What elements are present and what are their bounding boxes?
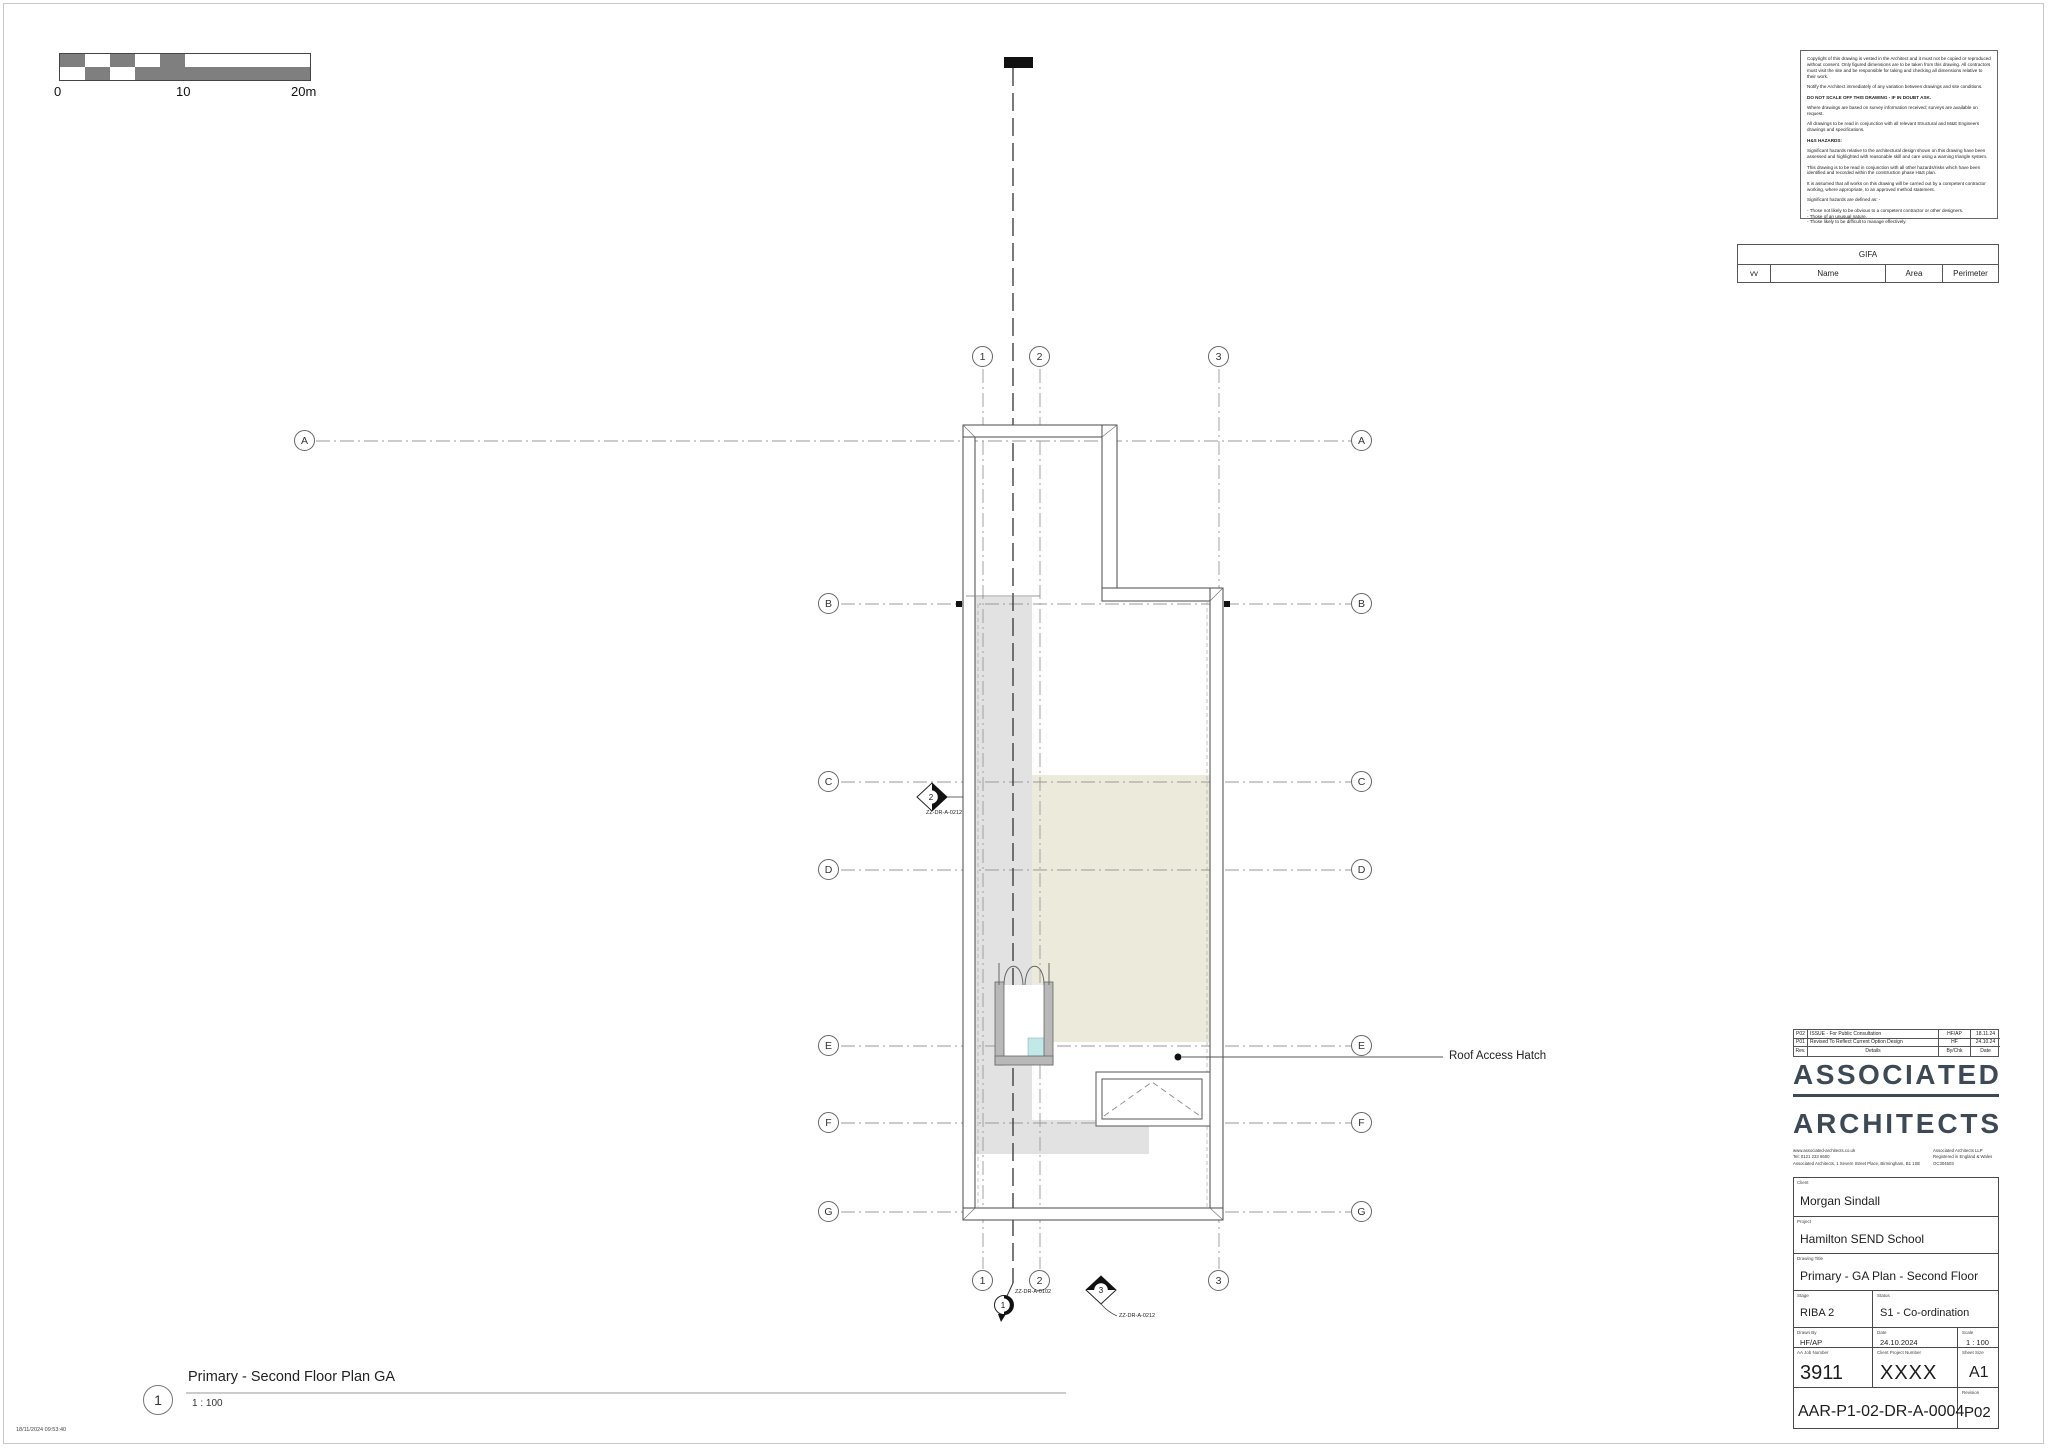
- grid-bubble-A-right: A: [1351, 430, 1372, 451]
- scale-label: Scale: [1962, 1330, 1973, 1335]
- revision-rev: P02: [1794, 1030, 1808, 1039]
- contact-right: Associated Architects LLP Registered in …: [1933, 1148, 1999, 1167]
- sheet-size-label: Sheet Size: [1962, 1350, 1984, 1355]
- level-marker-left-icon: [956, 601, 962, 607]
- drawing-number-value: AAR-P1-02-DR-A-0004: [1798, 1403, 1964, 1421]
- drawing-title-box: Drawing Title Primary - GA Plan - Second…: [1793, 1253, 1999, 1291]
- stage-value: RIBA 2: [1800, 1307, 1834, 1319]
- job-number-value: 3911: [1800, 1362, 1843, 1385]
- grid-bubble-B-left: B: [818, 593, 839, 614]
- gifa-col-name: Name: [1771, 265, 1886, 282]
- divider: [1957, 1328, 1958, 1347]
- revision-rev: P01: [1794, 1039, 1808, 1048]
- view-title: Primary - Second Floor Plan GA: [188, 1369, 395, 1385]
- revision-header-details: Details: [1808, 1047, 1939, 1056]
- project-label: Project: [1797, 1219, 1811, 1224]
- client-project-label: Client Project Number: [1877, 1350, 1921, 1355]
- grid-bubble-F-left: F: [818, 1112, 839, 1133]
- note: This drawing is to be read in conjunctio…: [1807, 165, 1991, 177]
- wall-left: [963, 425, 975, 1220]
- contact-company-no: OC304503: [1933, 1161, 1999, 1167]
- view-scale: 1 : 100: [192, 1398, 223, 1409]
- note: - Those likely to be difficult to manage…: [1807, 219, 1991, 225]
- scale-value: 1 : 100: [1966, 1338, 1989, 1347]
- gifa-col-vv: vv: [1738, 265, 1771, 282]
- stage-status-row: Stage RIBA 2 Status S1 - Co-ordination: [1793, 1290, 1999, 1328]
- revision-by: HF/AP: [1939, 1030, 1971, 1039]
- divider: [1957, 1348, 1958, 1387]
- section-marker-2-ref: ZZ-DR-A-0212: [926, 810, 962, 816]
- gifa-col-perimeter: Perimeter: [1943, 265, 1998, 282]
- date-label: Date: [1877, 1330, 1887, 1335]
- gifa-col-area: Area: [1886, 265, 1943, 282]
- project-box: Project Hamilton SEND School: [1793, 1216, 1999, 1254]
- grid-bubble-D-left: D: [818, 859, 839, 880]
- wall-bottom: [963, 1208, 1223, 1220]
- client-box: Client Morgan Sindall: [1793, 1177, 1999, 1217]
- client-project-value: XXXX: [1880, 1362, 1937, 1385]
- roof-access-hatch: [1096, 1072, 1210, 1126]
- revision-header-rev: Rev.: [1794, 1047, 1808, 1056]
- roof-access-hatch-label: Roof Access Hatch: [1449, 1050, 1546, 1062]
- section-marker-1-number: 1: [996, 1298, 1010, 1312]
- general-notes: Copyright of this drawing is vested in t…: [1800, 50, 1998, 219]
- drawn-by-value: HF/AP: [1800, 1338, 1822, 1347]
- grid-bubble-C-right: C: [1351, 771, 1372, 792]
- wall-top: [963, 425, 1117, 437]
- divider: [1872, 1348, 1873, 1387]
- date-value: 24.10.2024: [1880, 1338, 1918, 1347]
- revision-details: Revised To Reflect Current Option Design: [1808, 1039, 1939, 1048]
- gifa-table: GIFA vv Name Area Perimeter: [1737, 244, 1999, 283]
- note: Notify the Architect immediately of any …: [1807, 84, 1991, 90]
- scale-label-0: 0: [54, 84, 61, 99]
- enclosure-wall-bottom: [995, 1056, 1053, 1065]
- grid-bubble-2-top: 2: [1029, 346, 1050, 367]
- client-value: Morgan Sindall: [1800, 1194, 1880, 1208]
- note: Copyright of this drawing is vested in t…: [1807, 56, 1991, 80]
- status-value: S1 - Co-ordination: [1880, 1307, 1969, 1319]
- grid-bubble-G-left: G: [818, 1201, 839, 1222]
- contact-left: www.associated-architects.co.uk Tel: 012…: [1793, 1148, 1931, 1167]
- scale-label-10: 10: [176, 84, 190, 99]
- section-flag-icon: [1004, 57, 1033, 68]
- drawn-by-label: Drawn By: [1797, 1330, 1817, 1335]
- drawing-title-value: Primary - GA Plan - Second Floor: [1800, 1269, 1978, 1283]
- drawn-date-scale-row: Drawn By HF/AP Date 24.10.2024 Scale 1 :…: [1793, 1327, 1999, 1348]
- enclosure-wall-left: [995, 982, 1004, 1065]
- wall-step-b: [1102, 588, 1223, 601]
- drawing-sheet: 0 10 20m Copyright of this drawing is ve…: [0, 0, 2048, 1448]
- revision-by: HF: [1939, 1039, 1971, 1048]
- revision-header-date: Date: [1971, 1047, 2000, 1056]
- leader-dot-icon: [1175, 1054, 1182, 1061]
- contact-address: Associated Architects, 1 Severn Street P…: [1793, 1161, 1931, 1167]
- plot-timestamp: 18/11/2024 09:53:40: [16, 1427, 66, 1433]
- status-label: Status: [1877, 1293, 1890, 1298]
- drawing-number-row: AAR-P1-02-DR-A-0004 Revision P02: [1793, 1387, 1999, 1429]
- grid-bubble-1-bottom: 1: [972, 1270, 993, 1291]
- note: All drawings to be read in conjunction w…: [1807, 121, 1991, 133]
- grid-bubble-B-right: B: [1351, 593, 1372, 614]
- scale-label-20m: 20m: [291, 84, 316, 99]
- contact-registered: Registered in England & Wales: [1933, 1154, 1999, 1160]
- grid-bubble-D-right: D: [1351, 859, 1372, 880]
- section-marker-1-ref: ZZ-DR-A-0102: [1015, 1289, 1051, 1295]
- wall-narrow-right: [1102, 425, 1117, 601]
- scale-bar-bottom-row: [60, 67, 310, 80]
- revision-details: ISSUE - For Public Consultation: [1808, 1030, 1939, 1039]
- divider: [1872, 1328, 1873, 1347]
- section-marker-2-number: 2: [924, 790, 938, 804]
- revision-value: P02: [1964, 1404, 1991, 1421]
- grid-bubble-3-bottom: 3: [1208, 1270, 1229, 1291]
- drawing-title-label: Drawing Title: [1797, 1256, 1823, 1261]
- revision-date: 18.11.24: [1971, 1030, 2000, 1039]
- job-numbers-row: AA Job Number 3911 Client Project Number…: [1793, 1347, 1999, 1388]
- grid-bubble-1-top: 1: [972, 346, 993, 367]
- view-number-bubble: 1: [143, 1385, 173, 1415]
- project-value: Hamilton SEND School: [1800, 1232, 1924, 1246]
- core-strip-fill: [975, 597, 1032, 1154]
- plan-drawing-svg: [0, 0, 2048, 1448]
- scale-bar: [59, 53, 311, 81]
- note: It is assumed that all works on this dra…: [1807, 181, 1991, 193]
- section-marker-3-number: 3: [1094, 1283, 1108, 1297]
- stage-label: Stage: [1797, 1293, 1809, 1298]
- gifa-header-row: vv Name Area Perimeter: [1738, 265, 1998, 282]
- wall-right: [1210, 588, 1223, 1220]
- note: Significant hazards are defined as: -: [1807, 197, 1991, 203]
- scale-bar-top-row: [60, 54, 310, 67]
- section-marker-3-ref: ZZ-DR-A-0212: [1119, 1313, 1155, 1319]
- note: Significant hazards relative to the arch…: [1807, 148, 1991, 160]
- divider: [1872, 1291, 1873, 1327]
- grid-bubble-E-left: E: [818, 1035, 839, 1056]
- note-hs-hazards: H&S HAZARDS:: [1807, 138, 1991, 144]
- note: Where drawings are based on survey infor…: [1807, 105, 1991, 117]
- logo-rule: [1793, 1094, 1999, 1097]
- grid-bubble-A-left: A: [294, 430, 315, 451]
- revision-header-by: By/Chk: [1939, 1047, 1971, 1056]
- grid-bubble-E-right: E: [1351, 1035, 1372, 1056]
- level-marker-right-icon: [1224, 601, 1230, 607]
- grid-bubble-F-right: F: [1351, 1112, 1372, 1133]
- enclosure-wall-right: [1044, 982, 1053, 1065]
- sheet-size-value: A1: [1969, 1364, 1989, 1382]
- logo-architects: ARCHITECTS: [1793, 1110, 1999, 1138]
- note-do-not-scale: DO NOT SCALE OFF THIS DRAWING - IF IN DO…: [1807, 95, 1991, 101]
- grid-bubble-G-right: G: [1351, 1201, 1372, 1222]
- revision-label: Revision: [1962, 1390, 1979, 1395]
- job-number-label: AA Job Number: [1797, 1350, 1829, 1355]
- gifa-title: GIFA: [1738, 245, 1998, 265]
- grid-bubble-2-bottom: 2: [1029, 1270, 1050, 1291]
- revision-date: 24.10.24: [1971, 1039, 2000, 1048]
- grid-bubble-C-left: C: [818, 771, 839, 792]
- revision-table: P02 ISSUE - For Public Consultation HF/A…: [1793, 1029, 1999, 1057]
- client-label: Client: [1797, 1180, 1809, 1185]
- roof-area-fill: [1032, 775, 1212, 1042]
- grid-bubble-3-top: 3: [1208, 346, 1229, 367]
- logo-associated: ASSOCIATED: [1793, 1061, 1999, 1089]
